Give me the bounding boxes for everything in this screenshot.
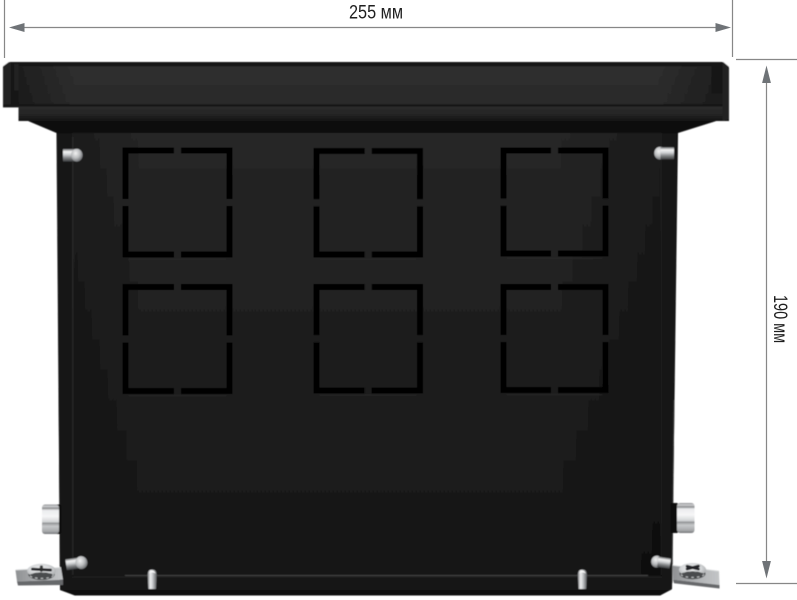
svg-text:255 мм: 255 мм: [349, 2, 403, 24]
svg-text:190 мм: 190 мм: [769, 295, 791, 343]
